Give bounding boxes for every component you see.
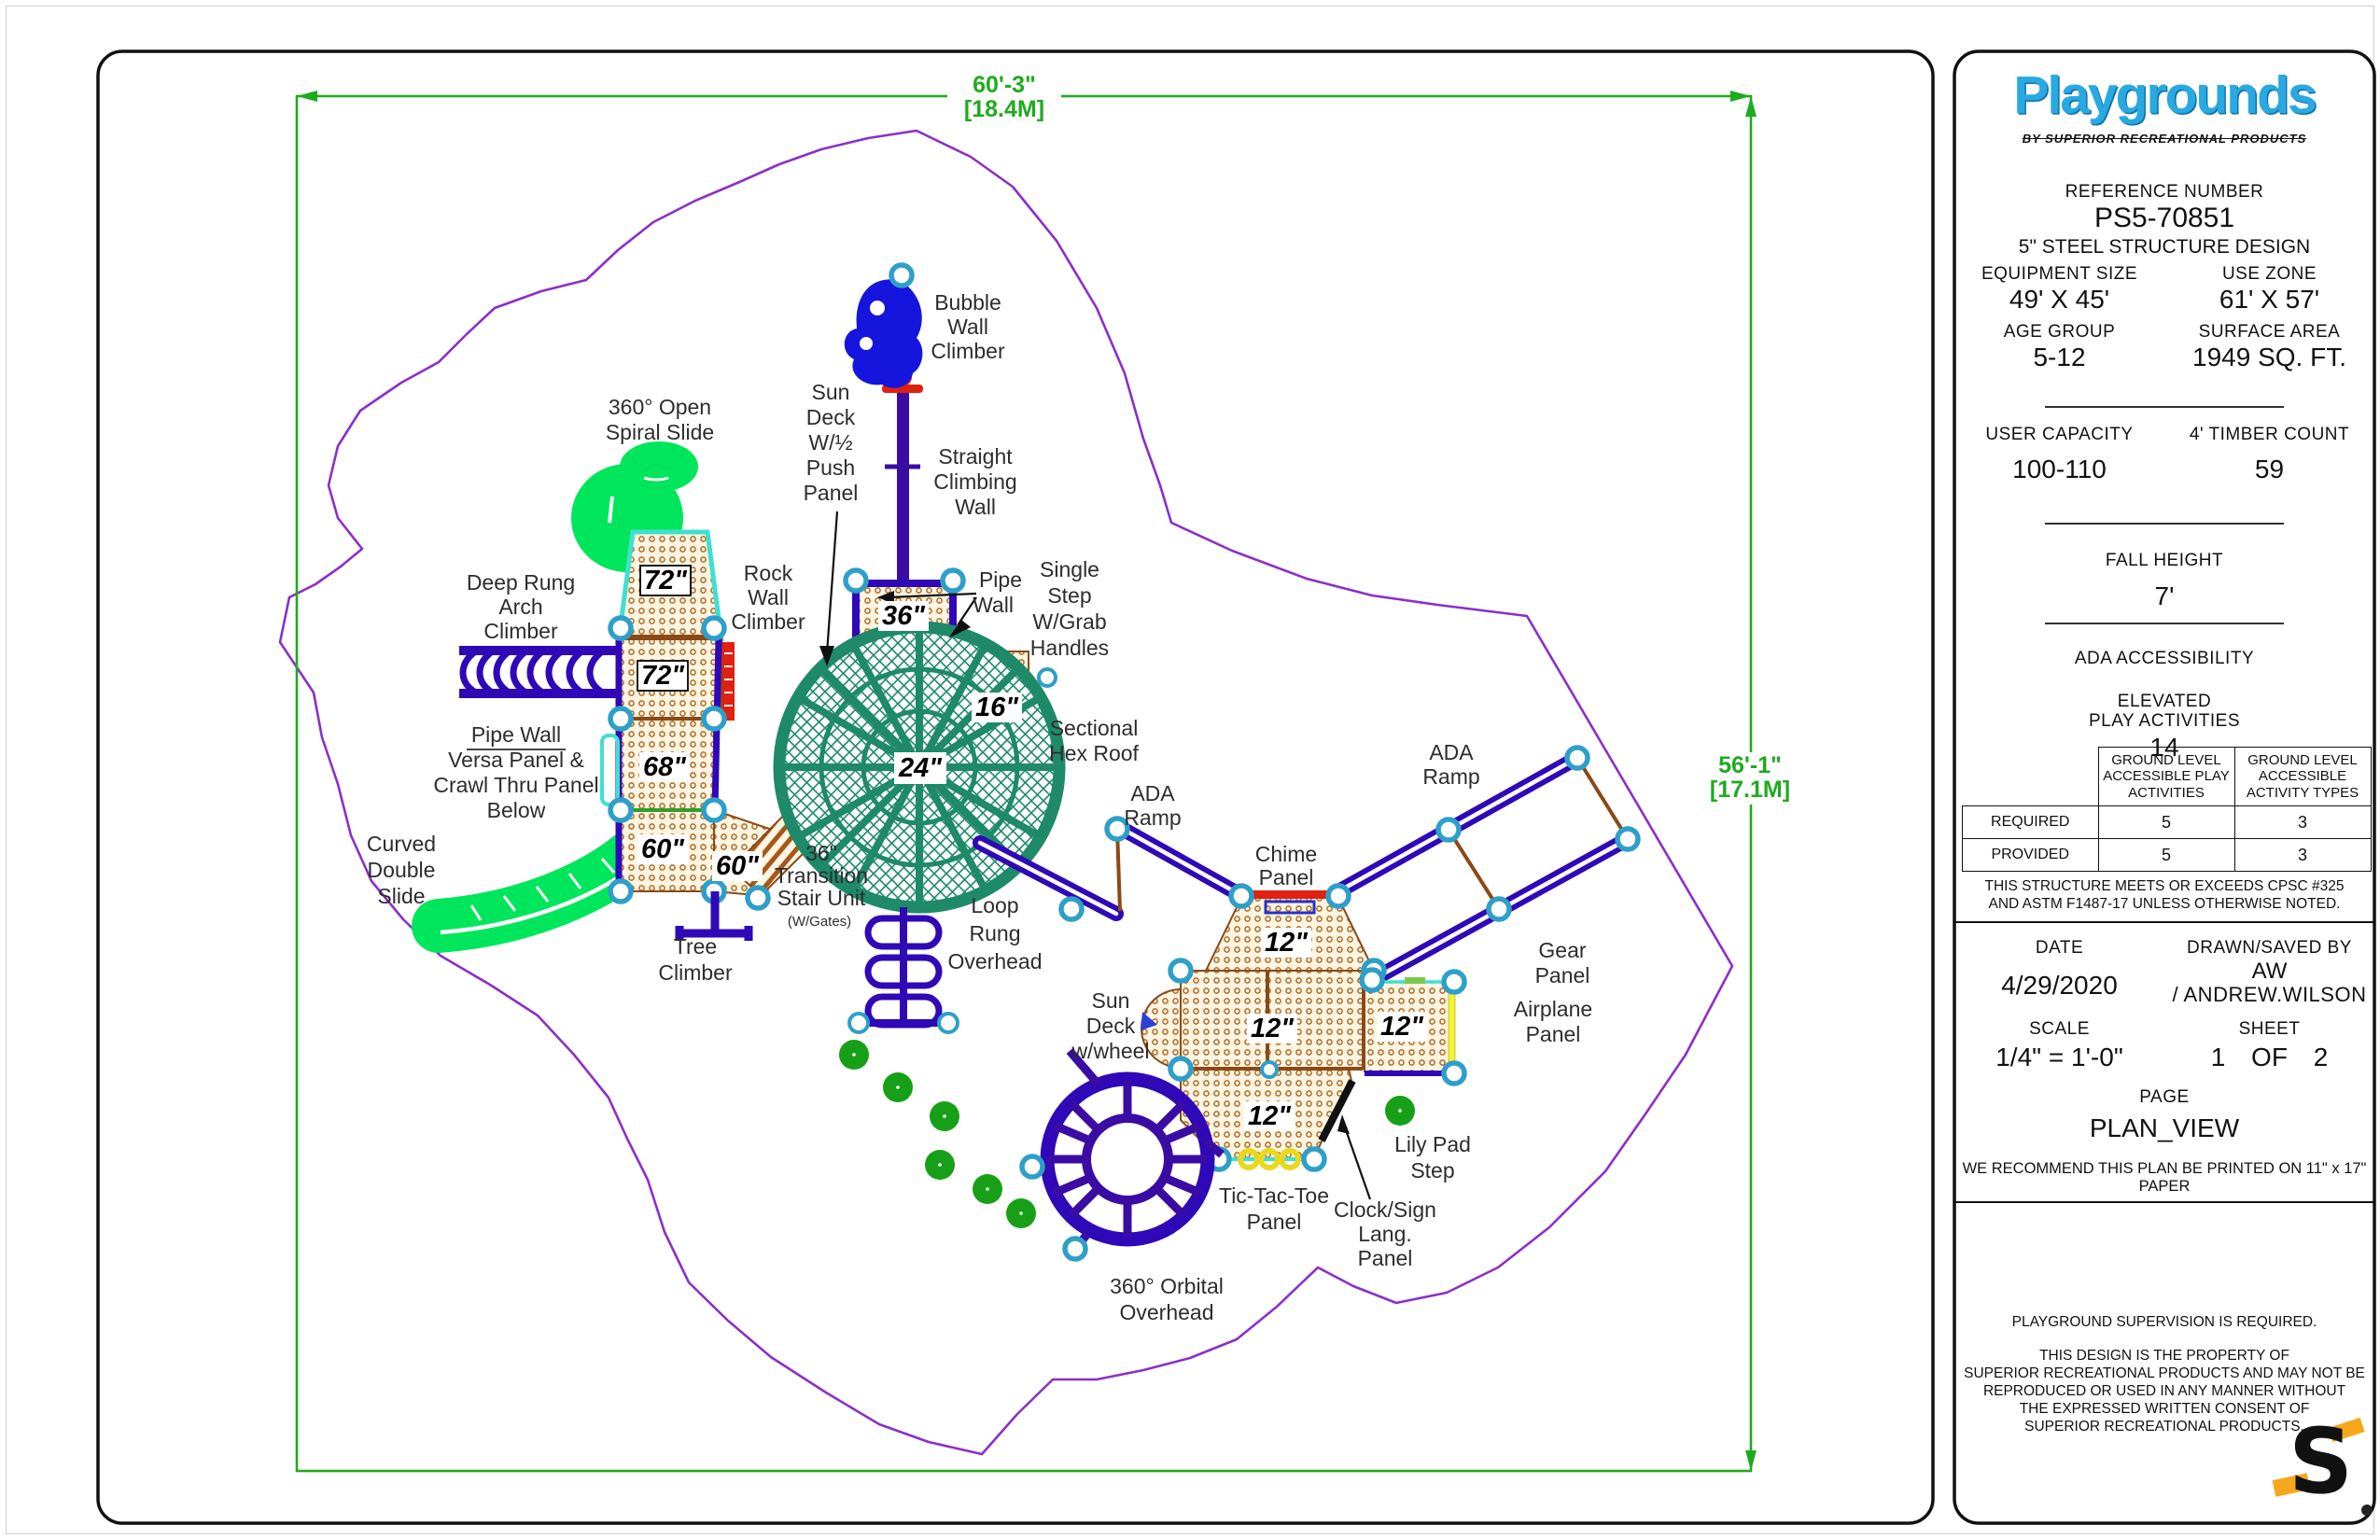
svg-text:Stair Unit: Stair Unit [777,886,866,910]
svg-text:Crawl Thru Panel: Crawl Thru Panel [433,773,598,797]
svg-text:16": 16" [975,693,1019,722]
svg-text:Push: Push [806,455,855,480]
structure-design: 5" STEEL STRUCTURE DESIGN [1954,236,2374,259]
sheet-value: 1 OF 2 [2164,1043,2374,1072]
svg-text:60": 60" [641,834,685,864]
label-spiral-slide: 360° Open [609,395,711,419]
svg-text:(W/Gates): (W/Gates) [788,914,851,930]
chime-panel-bar [1247,890,1333,899]
svg-text:Climber: Climber [483,619,558,643]
svg-text:Ramp: Ramp [1124,805,1181,830]
user-capacity: 100-110 [1954,455,2164,484]
elevated-label: ELEVATED [1954,692,2374,712]
svg-text:Panel: Panel [1535,963,1590,987]
use-zone-label: USE ZONE [2164,264,2374,285]
divider [1954,1201,2374,1203]
svg-text:Wall: Wall [947,315,988,339]
reference-number-label: REFERENCE NUMBER [1954,182,2374,203]
label-chime-panel: Chime [1255,842,1317,866]
dimension-width: 60'-3" [973,72,1036,98]
label-airplane-panel: Airplane [1514,997,1592,1021]
label-tree-climber: Tree [674,934,717,959]
surface-area-label: SURFACE AREA [2164,322,2374,343]
label-lily-pad-step: Lily Pad [1394,1132,1471,1156]
timber-count-label: 4' TIMBER COUNT [2164,425,2374,445]
svg-text:Deck: Deck [1086,1014,1136,1038]
svg-text:Rung: Rung [970,921,1021,945]
label-tic-tac-toe: Tic-Tac-Toe [1219,1183,1329,1208]
svg-text:Panel: Panel [804,481,859,505]
svg-text:12": 12" [1251,1014,1295,1043]
brand-logo: Playgrounds [1954,64,2374,126]
svg-text:12": 12" [1380,1012,1424,1042]
ada-accessibility-label: ADA ACCESSIBILITY [1954,649,2374,669]
svg-text:Climber: Climber [731,609,805,634]
date-value: 4/29/2020 [1954,971,2164,1001]
age-group-label: AGE GROUP [1954,322,2164,343]
fall-height: 7' [1954,581,2374,611]
drawn-by-initials: AW [2164,959,2374,985]
svg-text:Climber: Climber [931,339,1005,363]
svg-text:Hex Roof: Hex Roof [1049,741,1139,765]
svg-text:Handles: Handles [1030,636,1109,660]
svg-text:Ramp: Ramp [1422,764,1479,789]
svg-text:24": 24" [898,753,943,783]
dimension-width-metric: [18.4M] [964,96,1044,122]
svg-text:Step: Step [1410,1158,1454,1183]
label-ada-ramp-right: ADA [1429,740,1474,764]
label-bubble-wall: Bubble [934,290,1001,315]
label-orbital-overhead: 360° Orbital [1110,1274,1224,1298]
label-deep-rung: Deep Rung [467,570,575,595]
date-label: DATE [1954,938,2164,959]
supervision-note: PLAYGROUND SUPERVISION IS REQUIRED. [1954,1313,2374,1331]
s-logo-dot [2361,1505,2373,1516]
svg-text:Versa Panel &: Versa Panel & [448,748,584,772]
label-transition-stair: 36" [805,841,837,865]
divider [1954,921,2374,923]
svg-text:Double: Double [368,858,436,882]
svg-text:72": 72" [641,661,685,691]
svg-text:Wall: Wall [748,585,789,609]
svg-text:12": 12" [1248,1101,1292,1131]
label-hex-roof: Sectional [1050,716,1139,740]
drawn-by-name: / ANDREW.WILSON [2164,983,2374,1007]
svg-text:Lang.: Lang. [1358,1222,1412,1246]
copyright-note: THIS DESIGN IS THE PROPERTY OF [1954,1347,2374,1365]
table-row: PROVIDED 5 3 [1963,839,2372,872]
straight-climbing-wall [897,392,909,582]
sheet-label: SHEET [2164,1019,2374,1040]
drawn-by-label: DRAWN/SAVED BY [2164,938,2374,959]
print-recommendation: WE RECOMMEND THIS PLAN BE PRINTED ON 11"… [1954,1160,2374,1196]
svg-text:Overhead: Overhead [947,949,1042,973]
label-sun-deck-push: Sun [812,380,850,404]
svg-text:68": 68" [643,752,687,782]
label-pipe-wall: Pipe [979,567,1022,592]
svg-text:60": 60" [716,851,760,881]
compliance-note: THIS STRUCTURE MEETS OR EXCEEDS CPSC #32… [1954,877,2374,895]
dimension-height: 56'-1" [1718,752,1782,778]
divider [2045,406,2284,408]
plan-sheet: 60'-3" [18.4M] 56'-1" [17.1M] [0,0,2380,1540]
divider [2045,623,2284,624]
svg-text:36": 36" [882,601,926,631]
svg-text:Below: Below [487,798,546,822]
dimension-height-metric: [17.1M] [1710,777,1790,803]
svg-text:Climber: Climber [658,960,733,985]
label-rock-wall: Rock [744,561,793,585]
svg-text:Slide: Slide [377,884,425,908]
ada-col2-header: GROUND LEVEL ACCESSIBLE ACTIVITY TYPES [2234,748,2371,806]
brand-tagline: BY SUPERIOR RECREATIONAL PRODUCTS [1954,132,2374,146]
svg-text:Arch: Arch [498,595,542,619]
label-straight-climbing-wall: Straight [938,444,1013,469]
title-block: Playgrounds BY SUPERIOR RECREATIONAL PRO… [1954,51,2374,1523]
svg-text:72": 72" [644,566,688,595]
user-capacity-label: USER CAPACITY [1954,425,2164,445]
label-sun-deck-wheel: Sun [1092,988,1130,1013]
age-group: 5-12 [1954,343,2164,372]
surface-area: 1949 SQ. FT. [2164,343,2374,372]
equipment-size: 49' X 45' [1954,285,2164,315]
divider [2045,523,2284,525]
ada-col1-header: GROUND LEVEL ACCESSIBLE PLAY ACTIVITIES [2098,748,2234,806]
label-curved-double-slide: Curved [367,832,436,856]
page-label: PAGE [1954,1087,2374,1108]
label-loop-rung: Loop [971,893,1018,917]
scale-value: 1/4" = 1'-0" [1954,1043,2164,1072]
page-value: PLAN_VIEW [1954,1113,2374,1143]
svg-text:Deck: Deck [806,405,856,429]
scale-label: SCALE [1954,1019,2164,1040]
svg-text:Panel: Panel [1247,1210,1302,1234]
ada-table: GROUND LEVEL ACCESSIBLE PLAY ACTIVITIES … [1962,747,2372,872]
svg-text:Step: Step [1047,583,1091,608]
svg-text:Panel: Panel [1526,1022,1581,1046]
svg-text:Climbing: Climbing [933,469,1016,494]
svg-text:w/wheel: w/wheel [1071,1039,1149,1063]
svg-text:Wall: Wall [973,593,1014,617]
label-clock-sign: Clock/Sign [1334,1197,1436,1222]
use-zone: 61' X 57' [2164,285,2374,315]
label-gear-panel: Gear [1538,938,1586,962]
superior-s-logo: S [2272,1409,2374,1521]
svg-text:Panel: Panel [1358,1246,1413,1270]
equipment-size-label: EQUIPMENT SIZE [1954,264,2164,285]
label-ada-ramp-left: ADA [1130,781,1175,805]
table-row: REQUIRED 5 3 [1963,806,2372,839]
svg-text:Wall: Wall [955,495,996,519]
label-single-step: Single [1040,557,1099,581]
svg-text:Transition: Transition [775,863,868,888]
svg-text:Spiral Slide: Spiral Slide [606,420,714,444]
fall-height-label: FALL HEIGHT [1954,551,2374,571]
svg-text:12": 12" [1265,928,1309,958]
svg-text:W/Grab: W/Grab [1032,609,1106,634]
reference-number: PS5-70851 [1954,203,2374,234]
s-logo-letter: S [2289,1409,2353,1514]
airplane-panel-strip [1449,987,1455,1066]
svg-text:Panel: Panel [1259,865,1314,889]
timber-count: 59 [2164,455,2374,484]
svg-text:W/½: W/½ [808,430,852,455]
svg-text:Overhead: Overhead [1119,1300,1213,1324]
label-pipe-wall-versa: Pipe Wall [471,722,561,747]
